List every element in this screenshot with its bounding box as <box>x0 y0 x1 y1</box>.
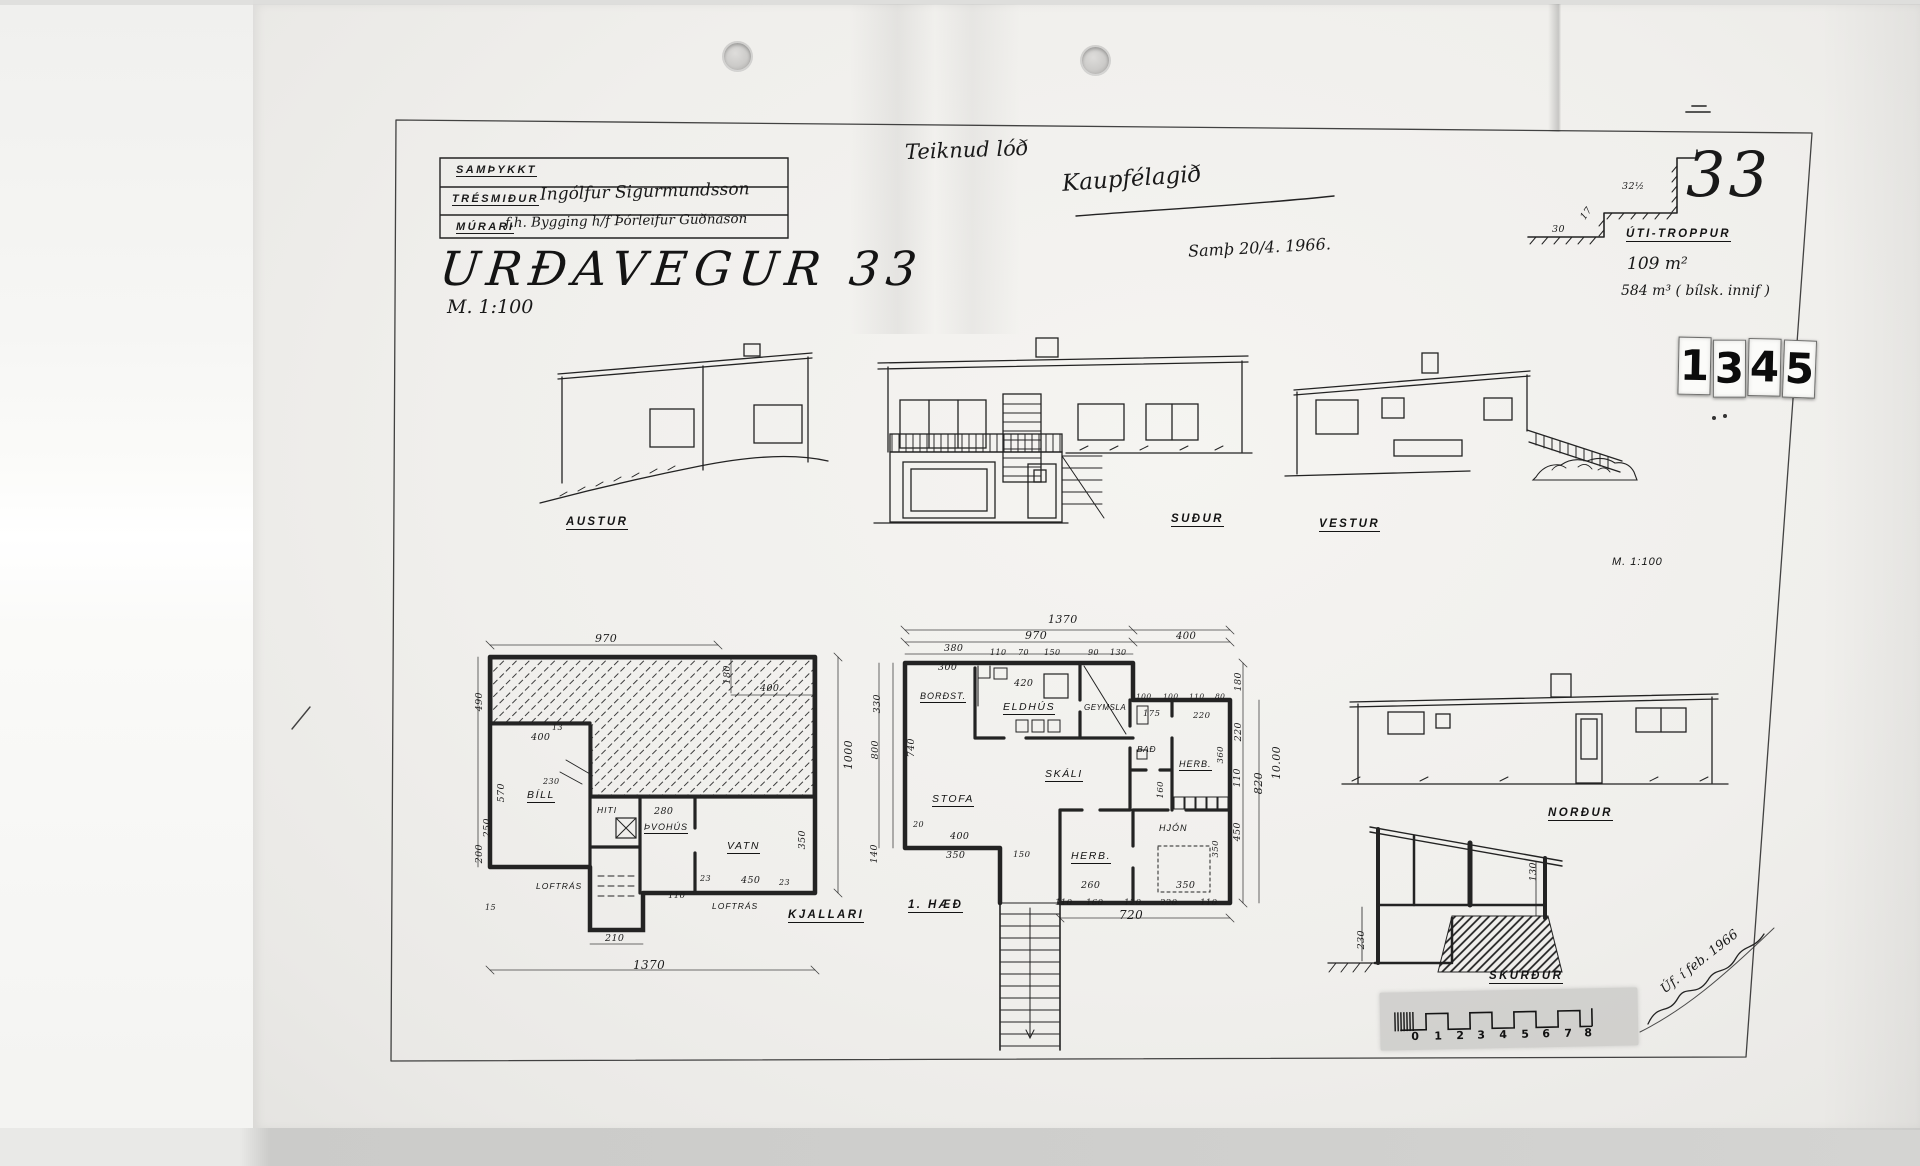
section-drawing <box>1328 827 1562 972</box>
scale-note-right: M. 1:100 <box>1612 556 1663 568</box>
dim: 450 <box>1232 822 1243 841</box>
dim: 400 <box>1176 631 1196 642</box>
room-label-master: HJÓN <box>1159 823 1188 833</box>
scale-number: 2 <box>1456 1029 1464 1042</box>
dim: 450 <box>741 875 760 886</box>
dim: 330 <box>872 694 883 713</box>
dim: 380 <box>944 643 963 654</box>
stamp-digit: 3 <box>1713 340 1746 398</box>
elevation-north-drawing <box>1342 674 1728 784</box>
dim: 70 <box>1018 648 1029 657</box>
dim: 110 <box>990 648 1006 657</box>
stair-dim-tread: 32½ <box>1622 181 1645 192</box>
dim: 110 <box>668 891 685 901</box>
dim: 400 <box>760 683 779 694</box>
plot-number: 33 <box>1686 138 1771 211</box>
dim: 110 <box>1200 898 1217 908</box>
room-label-dining: BORÐST. <box>920 691 966 703</box>
dim: 1000 <box>842 740 855 770</box>
dim: 180 <box>722 665 733 684</box>
stair-dim-run: 30 <box>1552 224 1565 235</box>
area-note: 109 m² <box>1627 254 1688 274</box>
dim: 200 <box>474 844 485 863</box>
room-label-storage: GEYMSLA <box>1084 703 1126 712</box>
room-label-hall: SKÁLI <box>1045 768 1083 782</box>
dim: 23 <box>700 874 711 883</box>
scale-number: 6 <box>1542 1027 1550 1040</box>
dim: 230 <box>543 777 559 786</box>
sheet-number-stamp: 1 3 4 5 <box>1677 337 1816 398</box>
dim: 300 <box>938 662 957 673</box>
dim: 350 <box>1176 880 1195 891</box>
dim: 13 <box>552 723 563 732</box>
dim: 180 <box>1233 672 1244 691</box>
scale-number: 7 <box>1564 1027 1572 1040</box>
project-title: URÐAVEGUR 33 <box>437 242 926 297</box>
dim: 150 <box>1044 648 1060 657</box>
dim: 220 <box>1160 898 1177 908</box>
signature-scribble <box>1640 928 1774 1032</box>
dim: 360 <box>1216 746 1226 763</box>
dim: 220 <box>1233 722 1244 741</box>
scale-number: 3 <box>1477 1029 1485 1042</box>
basement-caption: KJALLARI <box>788 909 864 923</box>
dim: 350 <box>1211 840 1221 857</box>
dim: 110 <box>1055 898 1072 908</box>
dim: 260 <box>1081 880 1100 891</box>
dim: 220 <box>1193 711 1210 721</box>
ink-dot <box>1712 416 1716 420</box>
elevation-west-label: VESTUR <box>1319 518 1380 532</box>
vent-label-1: LOFTRÁS <box>536 881 582 891</box>
dim: 100 <box>1163 692 1179 701</box>
room-label-laundry: ÞVOHÚS <box>644 822 688 834</box>
room-label-bath: BAÐ <box>1137 744 1156 754</box>
dim: 100 <box>1136 692 1152 701</box>
dim: 420 <box>1014 678 1033 689</box>
dim: 400 <box>950 831 969 842</box>
dim: 400 <box>531 732 550 743</box>
dim: 740 <box>906 738 917 757</box>
ink-dot <box>1723 414 1727 418</box>
carpenter-label: TRÉSMIÐUR <box>452 193 539 206</box>
dim: 350 <box>946 850 965 861</box>
photo-scale-bar: 0 1 2 3 4 5 6 7 8 <box>1379 987 1638 1050</box>
dim: 23 <box>779 878 790 887</box>
dim: 230 <box>1356 930 1367 949</box>
dim: 800 <box>870 740 881 759</box>
scale-number: 0 <box>1411 1030 1419 1043</box>
stamp-digit: 1 <box>1677 337 1711 396</box>
scale-number: 4 <box>1499 1028 1507 1041</box>
scale-number: 8 <box>1584 1026 1592 1039</box>
room-label-living: STOFA <box>932 793 974 807</box>
dim: 160 <box>1086 898 1103 908</box>
dim: 1370 <box>1048 613 1078 626</box>
dim: 130 <box>1110 648 1126 657</box>
main-floor-caption: 1. HÆÐ <box>908 899 963 913</box>
elevation-west-drawing <box>1285 353 1637 480</box>
volume-note: 584 m³ ( bílsk. innif ) <box>1621 283 1770 299</box>
dim: 80 <box>1215 692 1225 701</box>
room-label-room1: HERB. <box>1179 759 1212 771</box>
dim: 15 <box>485 903 496 912</box>
dim: 490 <box>474 692 485 711</box>
stamp-digit: 4 <box>1747 338 1781 397</box>
main-floor-plan-drawing <box>879 626 1259 1050</box>
vent-label-2: LOFTRÁS <box>712 901 758 911</box>
note-teiknud-lod: Teiknud lóð <box>905 136 1029 164</box>
project-scale: M. 1:100 <box>447 296 533 318</box>
dim: 280 <box>654 806 673 817</box>
elevation-south-drawing <box>874 338 1252 523</box>
dim: 175 <box>1143 709 1160 719</box>
dim: 90 <box>1088 648 1099 657</box>
dim: 130 <box>1528 862 1539 881</box>
dim: 110 <box>1232 768 1243 787</box>
dim: 110 <box>1189 692 1205 701</box>
room-label-kitchen: ELDHÚS <box>1003 701 1055 715</box>
room-label-heating: HITI <box>597 805 617 815</box>
approved-label: SAMÞYKKT <box>456 164 537 177</box>
dim: 210 <box>605 933 624 944</box>
dim: 10.00 <box>1270 746 1283 780</box>
scale-number: 5 <box>1521 1028 1529 1041</box>
dim: 570 <box>496 783 507 802</box>
dim: 820 <box>1252 772 1265 794</box>
scale-number: 1 <box>1434 1029 1442 1042</box>
room-label-room2: HERB. <box>1071 850 1111 864</box>
dim: 140 <box>869 844 880 863</box>
dim: 160 <box>1156 781 1166 798</box>
elevation-north-label: NORÐUR <box>1548 807 1613 821</box>
dim: 20 <box>913 820 924 829</box>
dim: 250 <box>482 818 493 837</box>
handwriting-underlines <box>1076 196 1334 216</box>
dim: 970 <box>1025 629 1047 642</box>
room-label-water: VATN <box>727 840 760 854</box>
stamp-digit: 5 <box>1782 339 1817 398</box>
dim: 720 <box>1119 908 1143 922</box>
dim: 970 <box>595 632 617 645</box>
elevation-east-drawing <box>540 344 828 503</box>
dim: 1370 <box>633 958 665 972</box>
section-caption: SKURÐUR <box>1489 970 1563 984</box>
elevation-south-label: SUÐUR <box>1171 513 1224 527</box>
elevation-east-label: AUSTUR <box>566 516 628 530</box>
dim: 350 <box>797 830 808 849</box>
dim: 120 <box>1124 898 1141 908</box>
room-label-garage: BÍLL <box>527 789 555 803</box>
dim: 150 <box>1013 850 1030 860</box>
scanned-drawing-sheet: SAMÞYKKT TRÉSMIÐUR Ingólfur Sigurmundsso… <box>0 0 1920 1166</box>
stair-detail-label: ÚTI-TROPPUR <box>1626 228 1731 242</box>
